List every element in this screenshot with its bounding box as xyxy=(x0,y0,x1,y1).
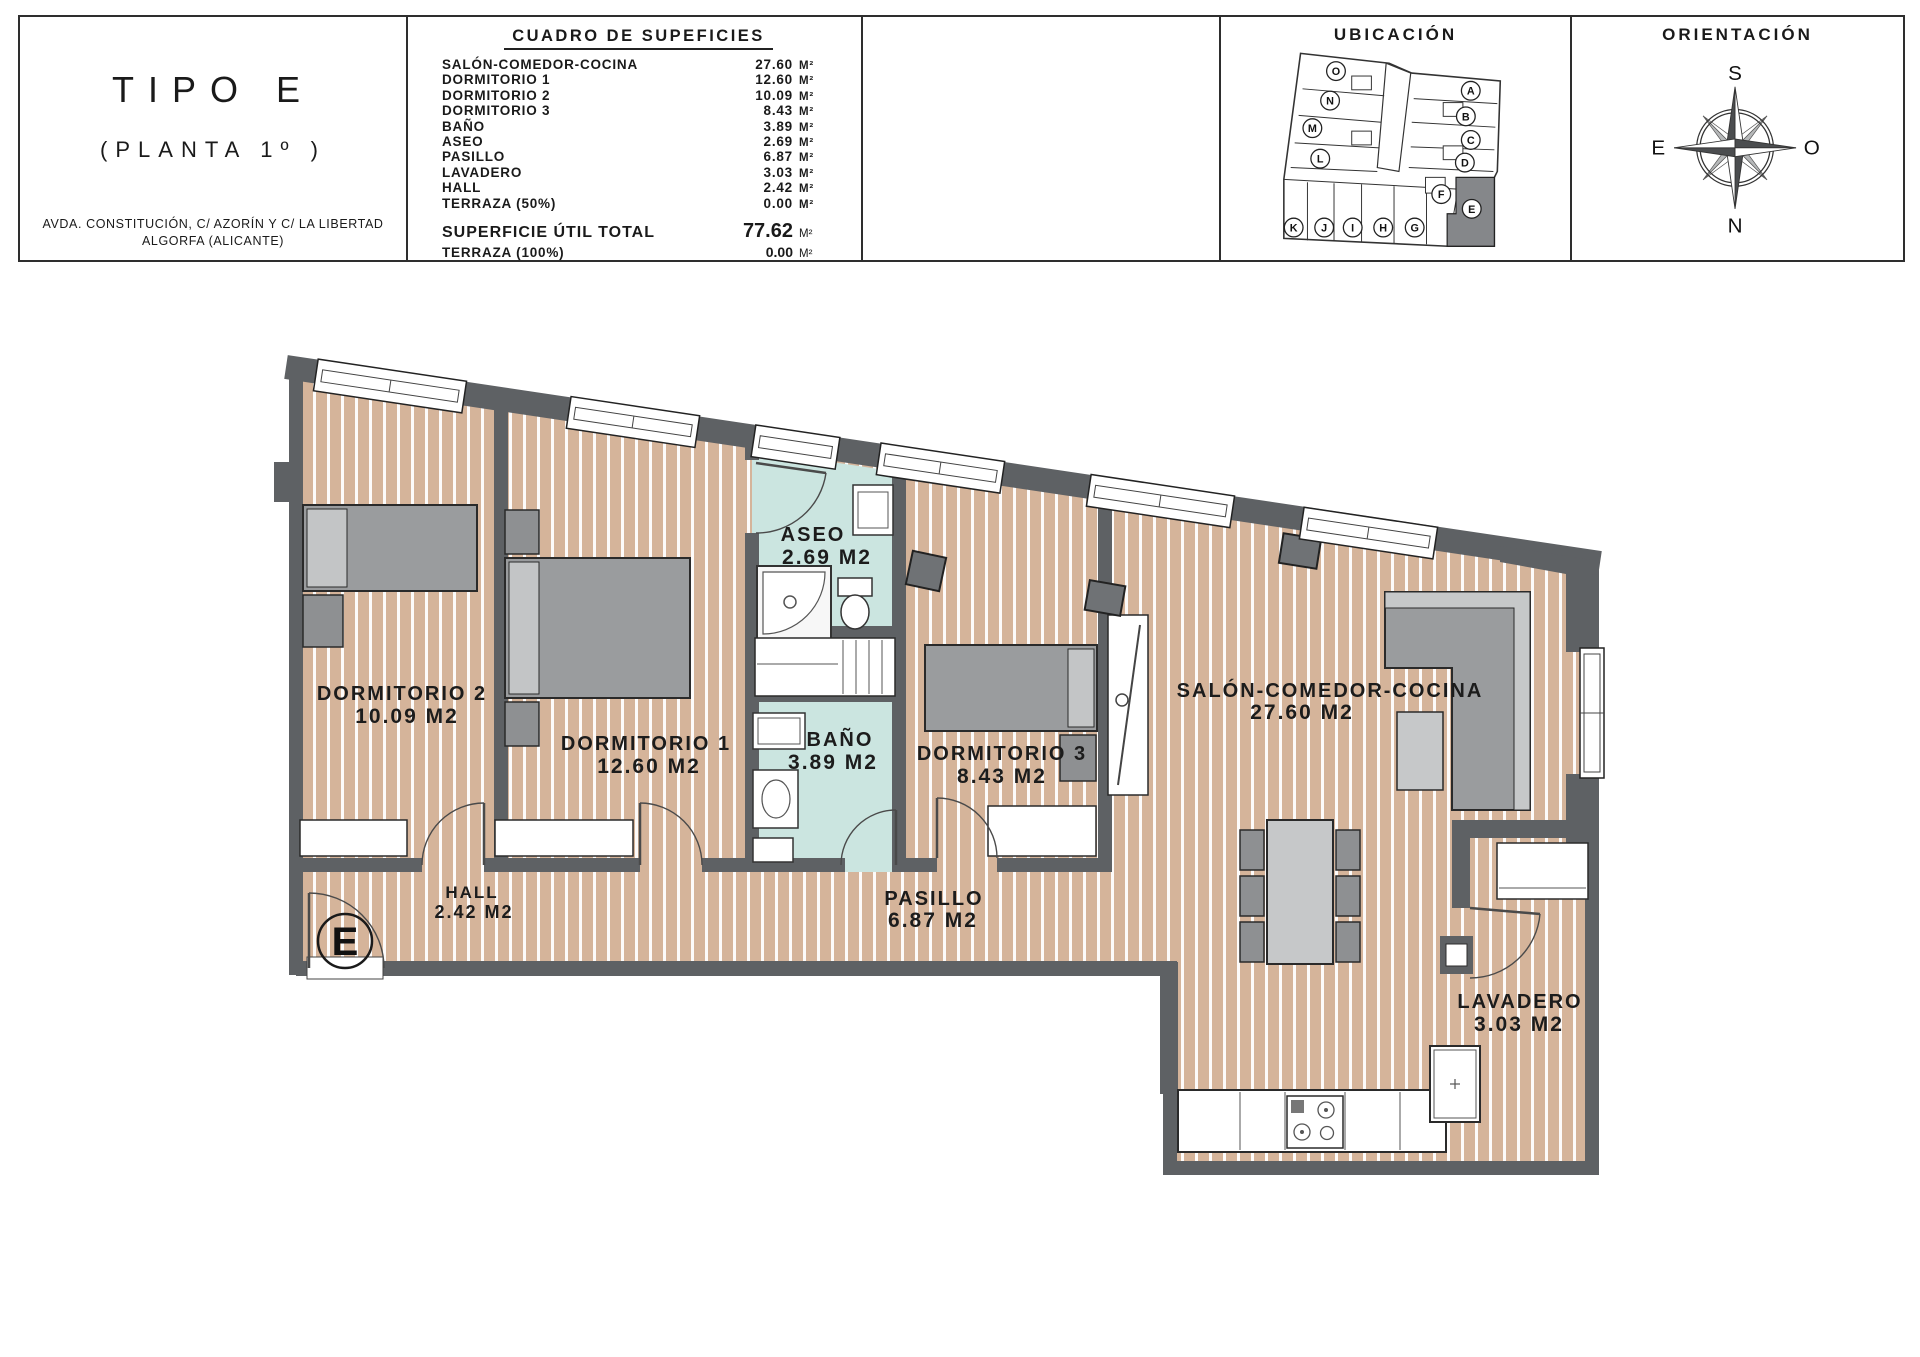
surface-terraza-row: TERRAZA (100%) 0.00 M² xyxy=(442,244,835,260)
dorm3-mirror-panel xyxy=(1108,615,1148,795)
svg-text:M: M xyxy=(1308,123,1317,135)
svg-text:I: I xyxy=(1351,222,1354,234)
dorm2-wardrobe xyxy=(300,820,407,856)
hall-closet xyxy=(755,638,895,696)
surface-rows: SALÓN-COMEDOR-COCINA27.60M²DORMITORIO 11… xyxy=(442,57,835,211)
compass-north-label: N xyxy=(1728,214,1743,237)
svg-text:N: N xyxy=(1326,96,1334,108)
compass-east-label: E xyxy=(1651,137,1665,160)
compass-rose-icon: S N E O xyxy=(1572,17,1903,260)
surface-row: PASILLO6.87M² xyxy=(442,149,835,164)
bath-sink xyxy=(753,713,805,749)
ac-unit xyxy=(906,551,946,591)
bath-toilet xyxy=(753,770,798,828)
svg-text:G: G xyxy=(1410,222,1418,234)
dining-set xyxy=(1240,820,1360,964)
svg-text:A: A xyxy=(1467,86,1475,98)
room-label-lavadero: LAVADERO xyxy=(1457,991,1582,1013)
surface-row: DORMITORIO 210.09M² xyxy=(442,88,835,103)
svg-text:J: J xyxy=(1321,222,1327,234)
svg-text:K: K xyxy=(1290,222,1298,234)
shower xyxy=(757,566,831,640)
svg-text:27.60 M2: 27.60 M2 xyxy=(1250,701,1354,724)
water-heater xyxy=(1446,944,1467,966)
surface-row: HALL2.42M² xyxy=(442,180,835,195)
svg-text:E: E xyxy=(1468,204,1475,216)
svg-text:L: L xyxy=(1317,154,1324,166)
surface-total-row: SUPERFICIE ÚTIL TOTAL 77.62 M² xyxy=(442,220,835,243)
svg-text:8.43 M2: 8.43 M2 xyxy=(957,765,1047,788)
svg-text:2.42 M2: 2.42 M2 xyxy=(434,902,513,922)
surface-row: DORMITORIO 38.43M² xyxy=(442,103,835,118)
orientation-panel: S N E O ORIENTACIÓN xyxy=(1570,15,1905,262)
stove xyxy=(1287,1096,1343,1148)
svg-text:H: H xyxy=(1379,222,1387,234)
surface-row: SALÓN-COMEDOR-COCINA27.60M² xyxy=(442,57,835,72)
svg-text:3.89 M2: 3.89 M2 xyxy=(788,751,878,774)
right-wall-window xyxy=(1580,648,1604,778)
location-title: UBICACIÓN xyxy=(1221,25,1570,45)
surface-row: TERRAZA (50%)0.00M² xyxy=(442,196,835,211)
svg-text:10.09 M2: 10.09 M2 xyxy=(355,705,459,728)
surface-table-panel: CUADRO DE SUPEFICIES SALÓN-COMEDOR-COCIN… xyxy=(406,15,863,262)
ac-unit xyxy=(1085,580,1126,616)
svg-text:E: E xyxy=(332,920,359,964)
plan-floor-subtitle: (PLANTA 1º ) xyxy=(20,137,406,163)
plan-type-title: TIPO E xyxy=(20,69,406,111)
compass-west-label: O xyxy=(1804,137,1820,160)
dorm1-wardrobe xyxy=(495,820,633,856)
orientation-title: ORIENTACIÓN xyxy=(1572,25,1903,45)
project-address: AVDA. CONSTITUCIÓN, C/ AZORÍN Y C/ LA LI… xyxy=(20,216,406,250)
room-label-pasillo: PASILLO xyxy=(884,888,983,910)
aseo-toilet xyxy=(838,578,872,629)
svg-text:C: C xyxy=(1467,135,1475,147)
svg-text:D: D xyxy=(1461,158,1469,170)
aseo-washbasin xyxy=(853,485,893,535)
svg-text:3.03 M2: 3.03 M2 xyxy=(1474,1013,1564,1036)
surface-row: LAVADERO3.03M² xyxy=(442,165,835,180)
side-table xyxy=(1397,712,1443,790)
svg-text:O: O xyxy=(1332,66,1340,78)
surface-row: BAÑO3.89M² xyxy=(442,119,835,134)
svg-text:12.60 M2: 12.60 M2 xyxy=(597,755,701,778)
surface-table-title: CUADRO DE SUPEFICIES xyxy=(504,27,773,50)
room-label-dormitorio-3: DORMITORIO 3 xyxy=(917,743,1087,765)
bath-shelf xyxy=(753,838,793,862)
compass-south-label: S xyxy=(1728,62,1742,85)
room-label-aseo: ASEO xyxy=(781,524,846,546)
floor-plan-sheet: E DORMITORIO 2 10.09 M2 DORMITORIO 1 12.… xyxy=(0,0,1920,1357)
room-label-dormitorio-1: DORMITORIO 1 xyxy=(561,733,731,755)
room-label-dormitorio-2: DORMITORIO 2 xyxy=(317,683,487,705)
dorm3-wardrobe xyxy=(988,806,1096,856)
surface-row: DORMITORIO 112.60M² xyxy=(442,72,835,87)
title-block: TIPO E (PLANTA 1º ) AVDA. CONSTITUCIÓN, … xyxy=(18,15,408,262)
svg-text:B: B xyxy=(1462,111,1470,123)
room-label-salon: SALÓN-COMEDOR-COCINA xyxy=(1177,678,1484,702)
room-label-bano: BAÑO xyxy=(807,728,874,751)
surface-row: ASEO2.69M² xyxy=(442,134,835,149)
empty-panel xyxy=(861,15,1221,262)
room-label-hall: HALL xyxy=(445,883,498,902)
location-panel: O N M L A B C D F E K J I H G UBICACIÓN xyxy=(1219,15,1572,262)
site-plan: O N M L A B C D F E K J I H G xyxy=(1221,17,1570,260)
laundry-counter xyxy=(1497,843,1588,899)
left-wall-pilaster xyxy=(274,462,298,502)
svg-text:F: F xyxy=(1438,189,1445,201)
svg-text:6.87 M2: 6.87 M2 xyxy=(888,909,978,932)
svg-text:2.69 M2: 2.69 M2 xyxy=(782,546,872,569)
fridge xyxy=(1430,1046,1480,1122)
